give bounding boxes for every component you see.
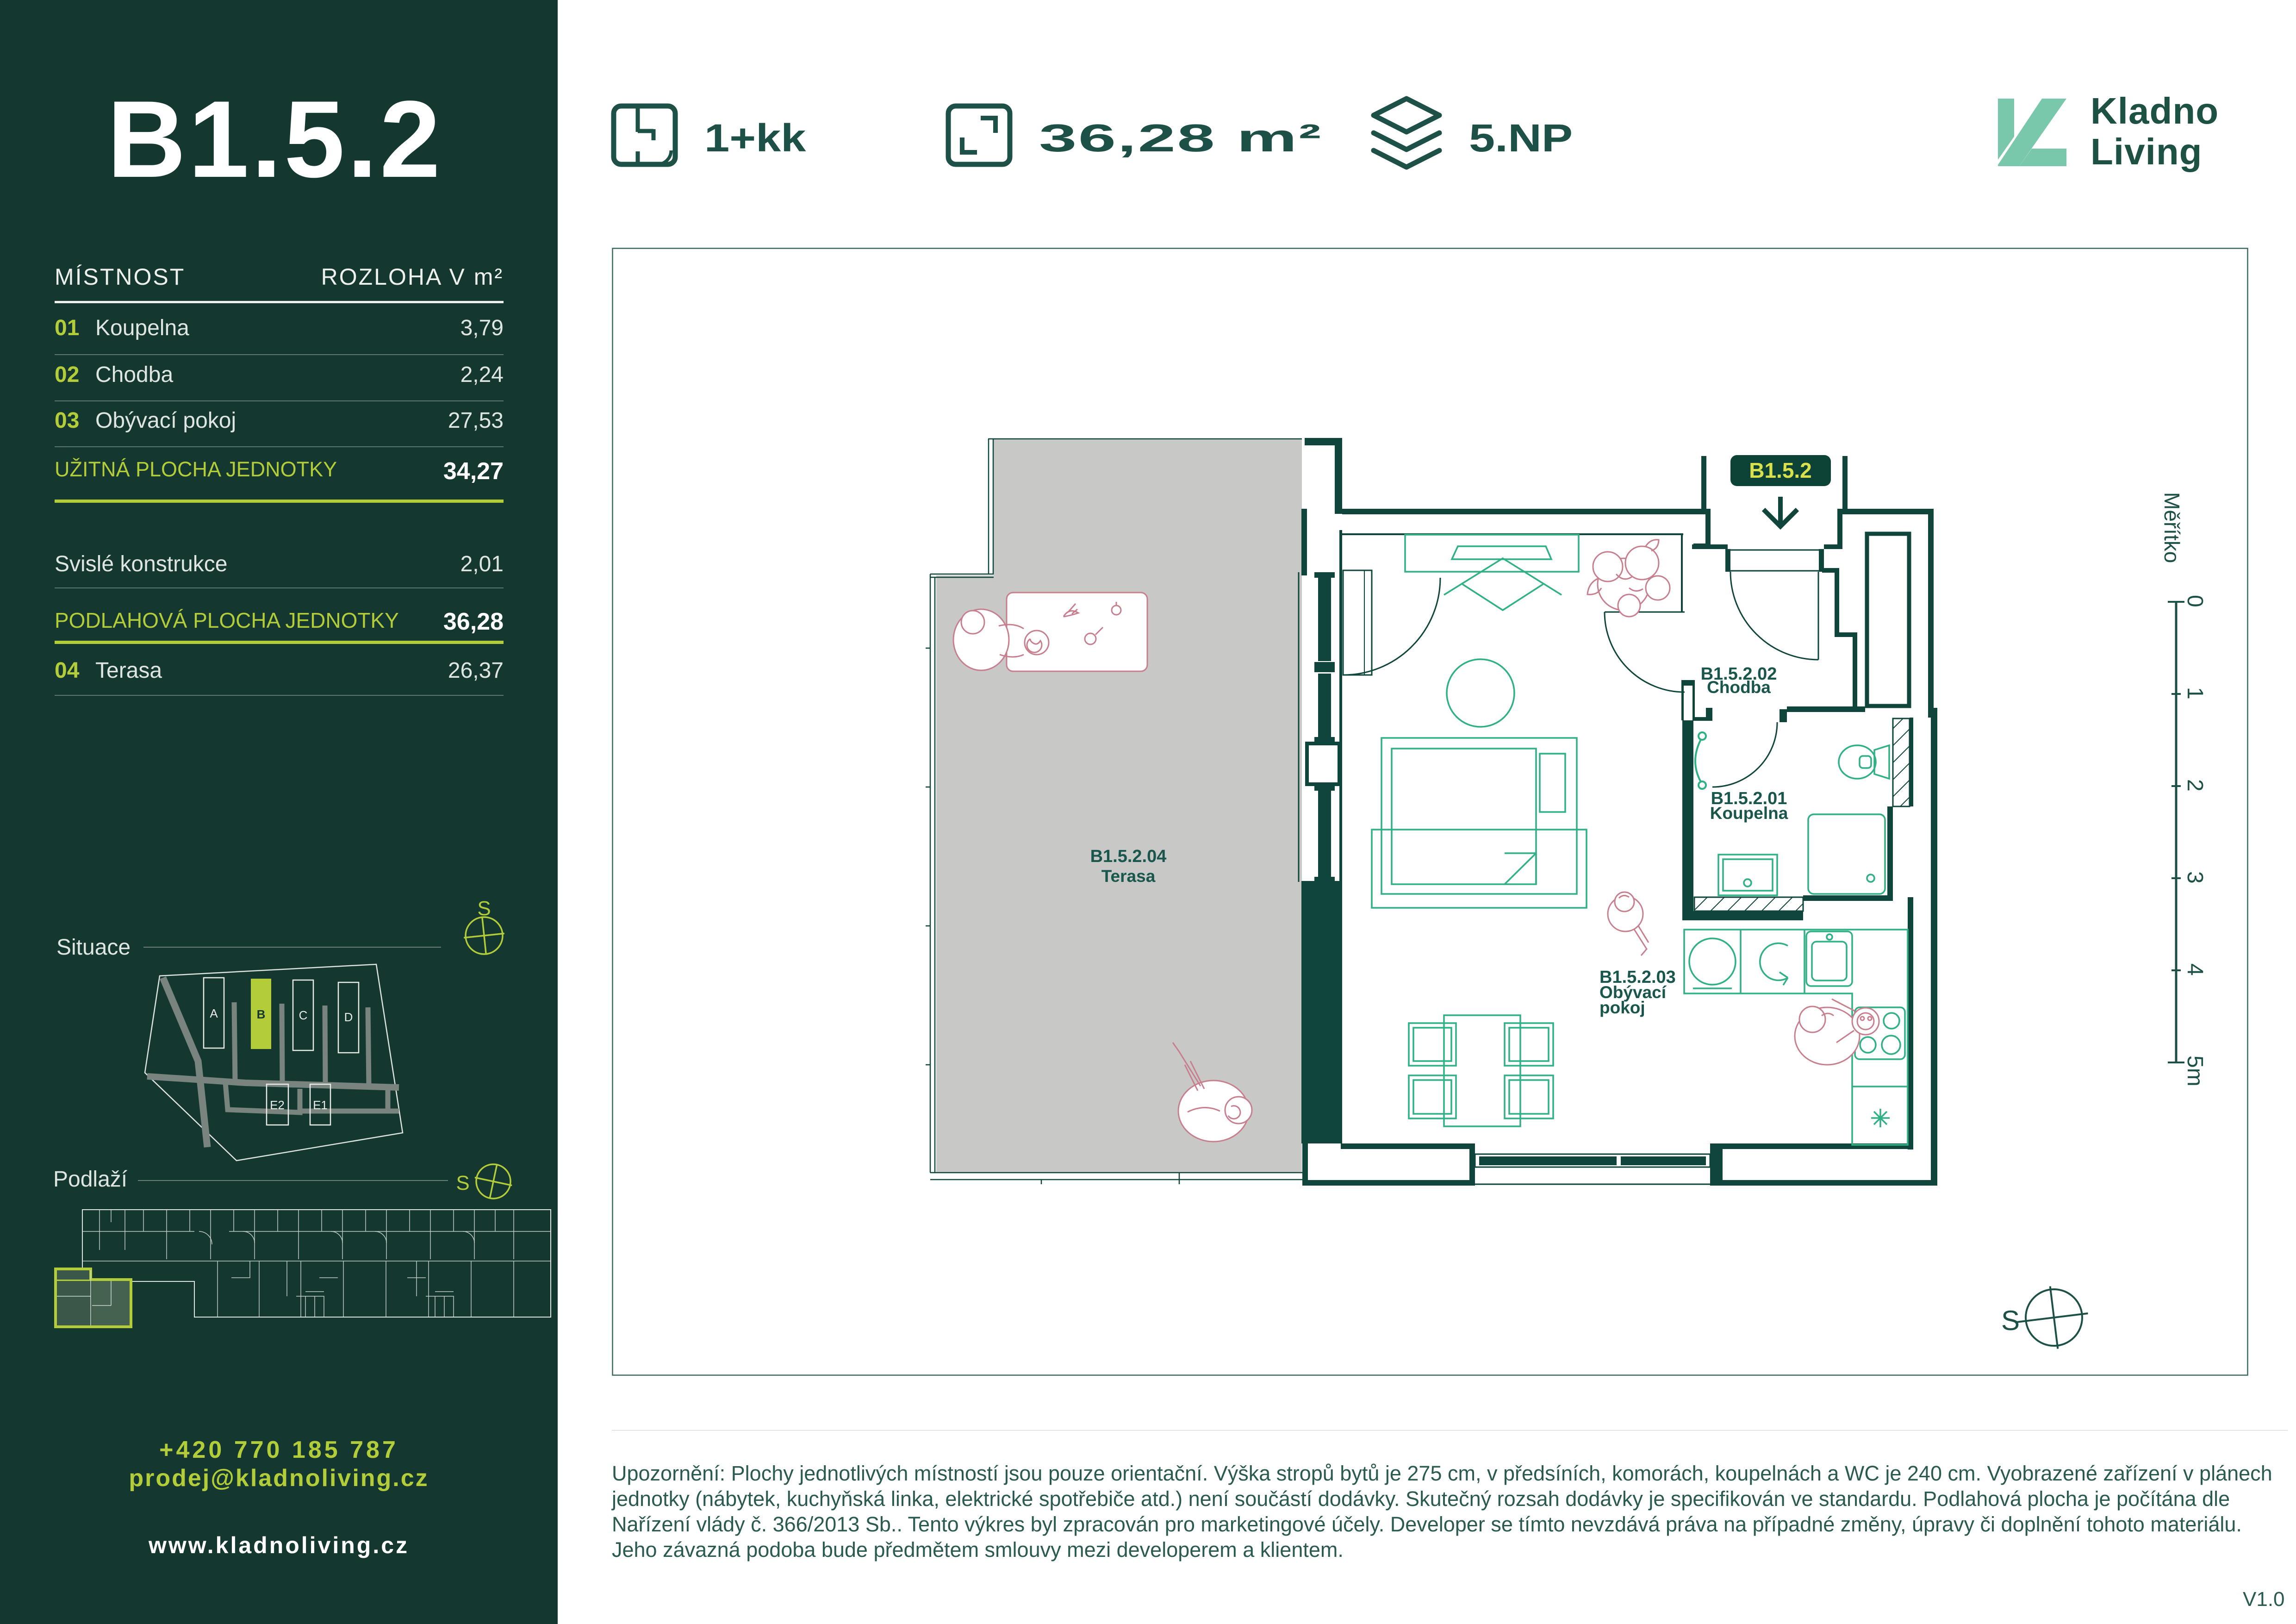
svg-text:5m: 5m xyxy=(2183,1056,2207,1087)
svg-text:B: B xyxy=(257,1007,266,1021)
svg-text:0: 0 xyxy=(2183,595,2207,607)
svg-text:E1: E1 xyxy=(313,1098,328,1112)
svg-text:D: D xyxy=(344,1010,353,1024)
svg-text:Chodba: Chodba xyxy=(1707,678,1771,697)
svg-text:Měřítko: Měřítko xyxy=(2160,492,2184,563)
svg-text:A: A xyxy=(210,1006,218,1020)
svg-text:S: S xyxy=(2001,1305,2020,1336)
svg-text:E2: E2 xyxy=(270,1098,285,1112)
svg-text:S: S xyxy=(456,1172,469,1194)
svg-text:C: C xyxy=(299,1008,308,1022)
svg-text:B1.5.2.04: B1.5.2.04 xyxy=(1090,847,1167,866)
svg-text:3: 3 xyxy=(2183,871,2207,884)
svg-text:1: 1 xyxy=(2183,687,2207,700)
svg-text:B1.5.2: B1.5.2 xyxy=(1749,458,1812,482)
svg-text:4: 4 xyxy=(2183,963,2207,976)
svg-text:2: 2 xyxy=(2183,779,2207,792)
svg-text:pokoj: pokoj xyxy=(1599,998,1645,1017)
svg-text:Koupelna: Koupelna xyxy=(1710,804,1788,823)
svg-text:Terasa: Terasa xyxy=(1101,867,1156,886)
